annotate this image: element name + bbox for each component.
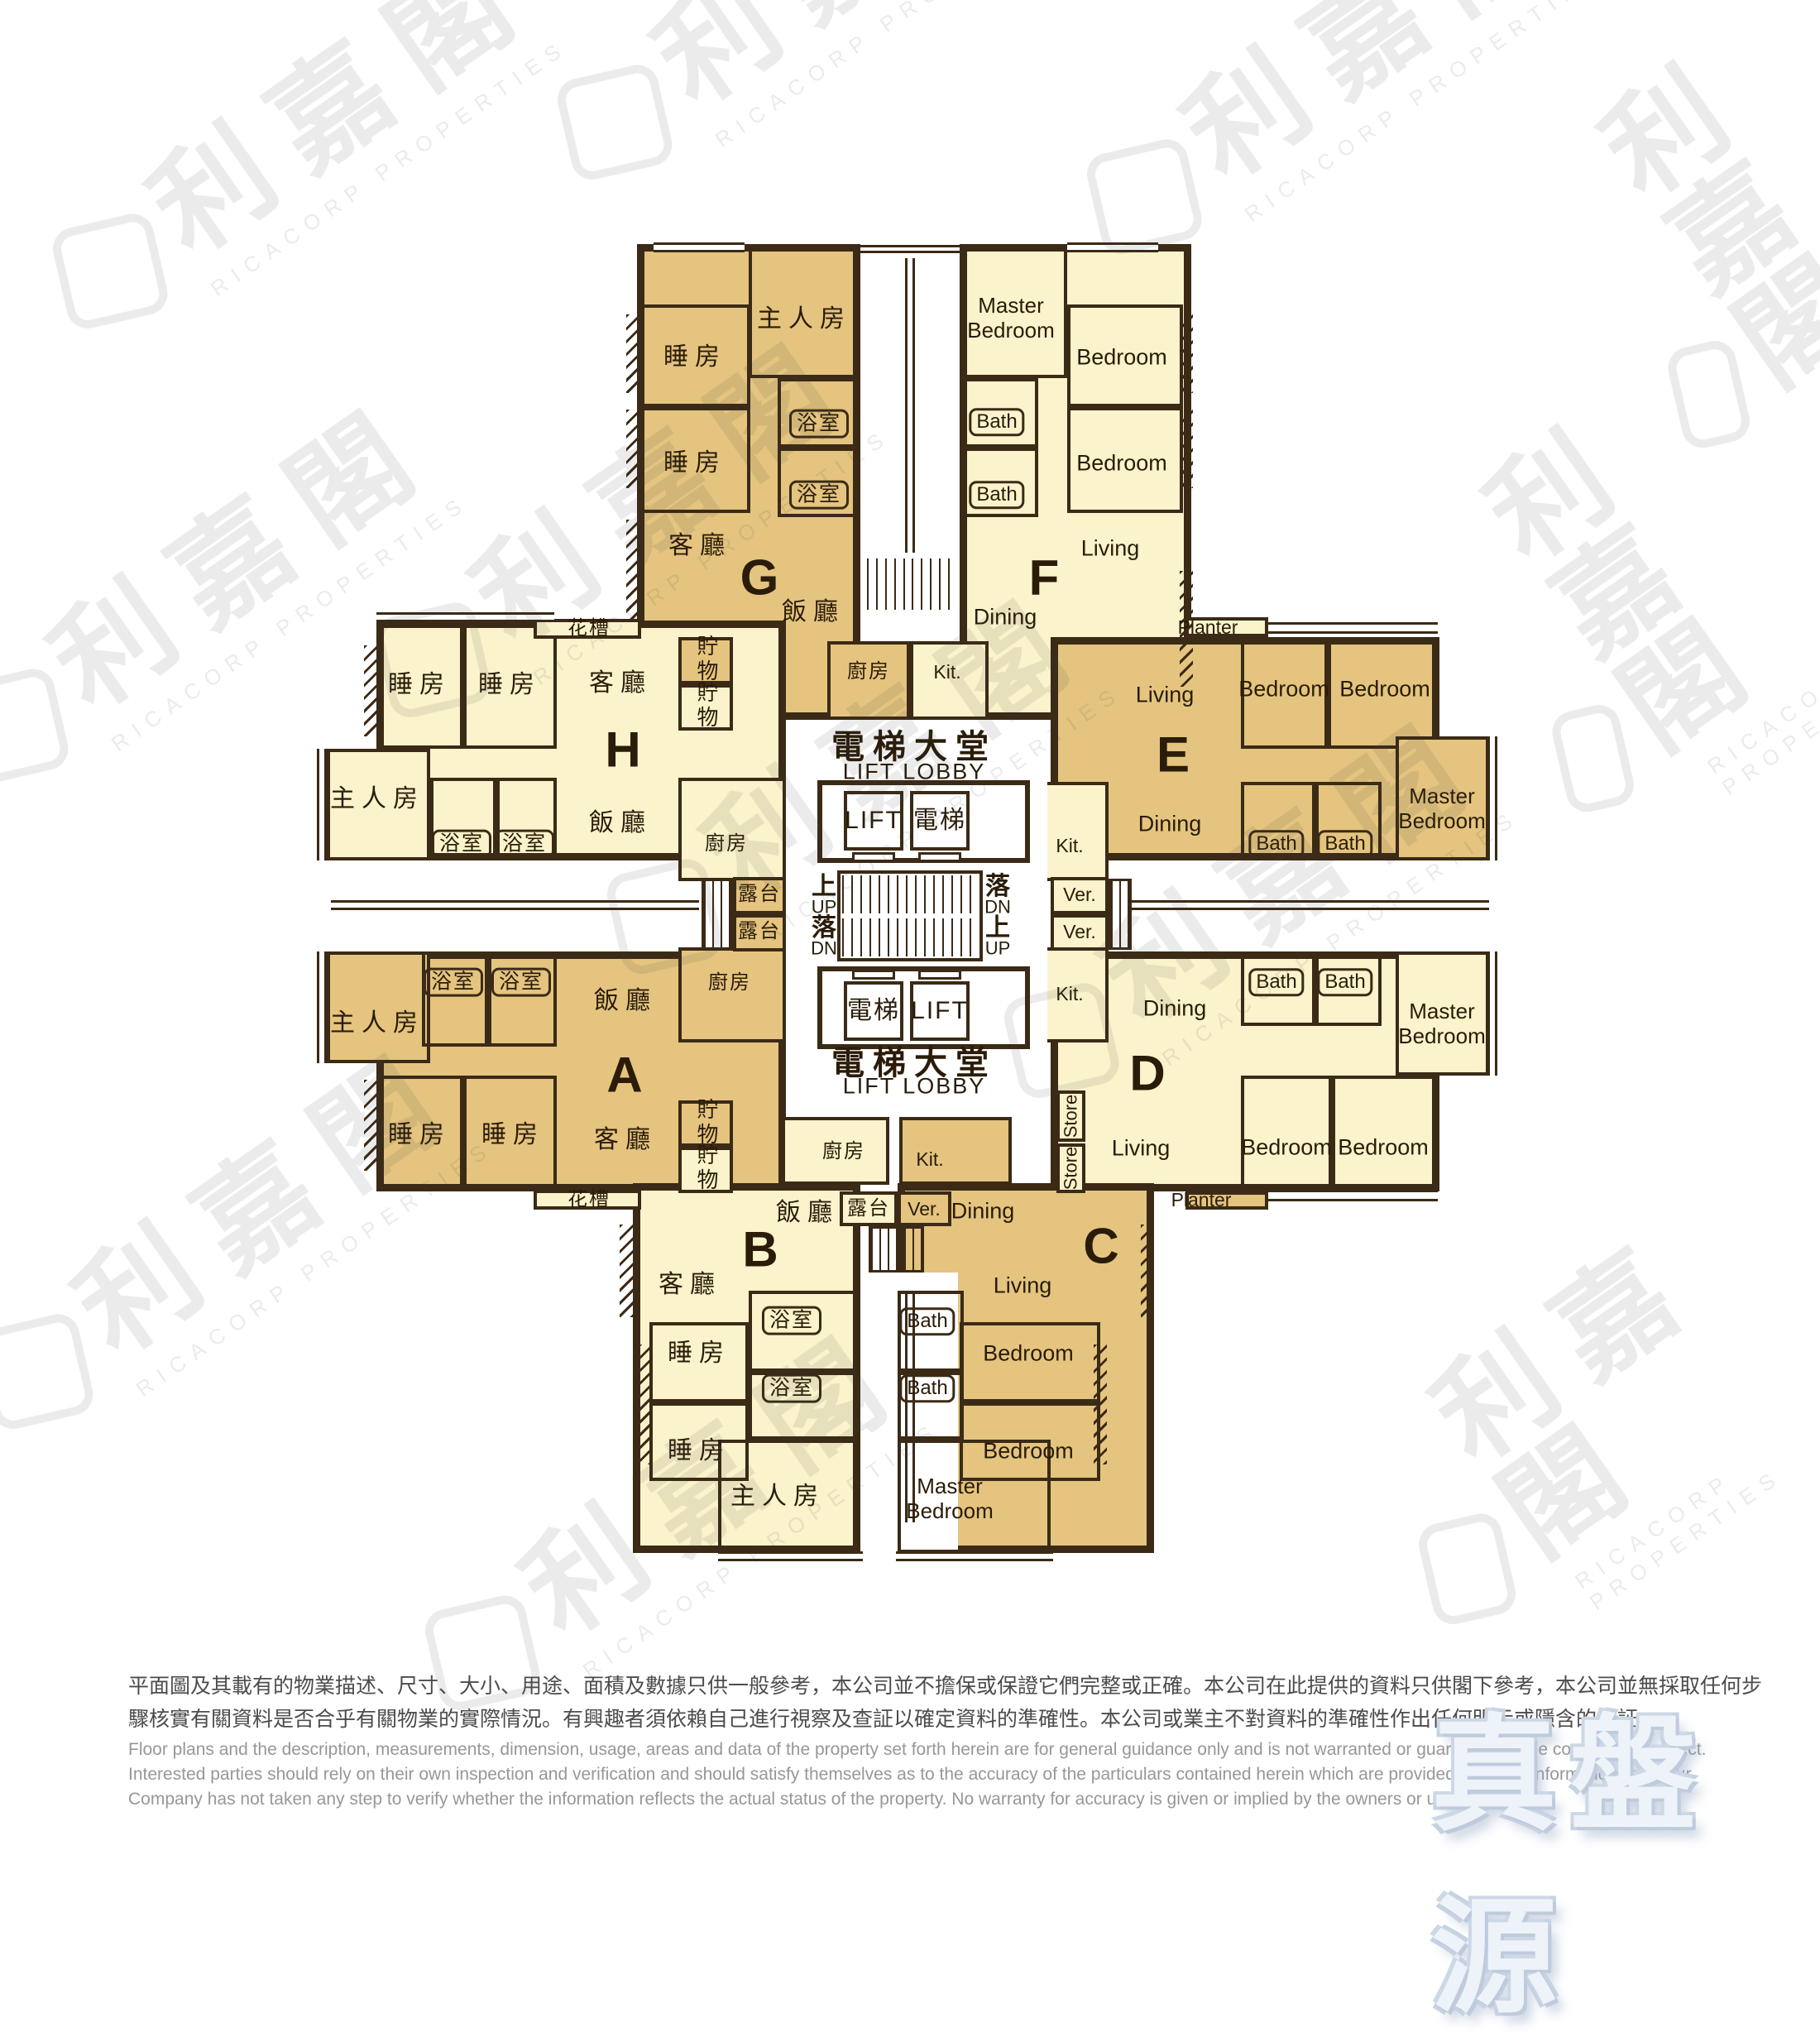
ricacorp-logo-icon [1083, 135, 1206, 258]
unit-e-letter: E [1157, 726, 1190, 784]
unit-f-living-label: Living [1081, 535, 1140, 561]
unit-a-dining-label: 飯廳 [594, 987, 657, 1016]
unit-d-dining-label: Dining [1143, 995, 1207, 1021]
unit-g-bedroom-2-label: 睡房 [663, 449, 726, 478]
unit-b-living-label: 客廳 [659, 1271, 721, 1300]
lift-door-3 [852, 970, 895, 980]
unit-g-dining-label: 飯廳 [782, 598, 845, 627]
unit-a-kitchen [678, 947, 786, 1042]
unit-d-kitchen-label: Kit. [1056, 983, 1083, 1004]
lightwell-top-rail [860, 245, 960, 253]
ricacorp-logo-icon [49, 209, 172, 333]
ricacorp-logo-icon [1664, 337, 1754, 453]
unit-c-dining-label: Dining [951, 1198, 1015, 1224]
bay-window-e-bedrooms [1268, 622, 1438, 634]
unit-b-kitchen-label: 廚房 [822, 1140, 865, 1163]
unit-d-living-label: Living [1112, 1135, 1171, 1161]
unit-g-store-label: 貯物 [693, 635, 718, 684]
unit-e-bedroom-1-label: Bedroom [1238, 676, 1329, 702]
balcony-rail-top-1 [867, 558, 908, 610]
unit-a-bedroom-2-label: 睡房 [481, 1121, 544, 1150]
zigzag-window-b-bedrooms [639, 1344, 652, 1464]
lift-top-left-label: LIFT [845, 807, 903, 836]
unit-f-letter: F [1029, 549, 1060, 606]
unit-h-kitchen-label: 廚房 [705, 832, 748, 856]
unit-c-bedroom-1-label: Bedroom [983, 1340, 1074, 1366]
ricacorp-logo-icon [0, 1310, 98, 1433]
unit-e-kitchen-label: Kit. [1056, 835, 1083, 856]
unit-a-store-label: 貯物 [693, 1098, 718, 1148]
unit-h-dining-label: 飯廳 [589, 809, 652, 838]
unit-a-planter-label: 花槽 [568, 1188, 611, 1211]
unit-d-planter-label: Planter [1171, 1189, 1232, 1210]
bay-window-c-master [896, 1551, 1053, 1561]
unit-e-bath-2-label: Bath [1317, 830, 1372, 858]
stair-up-right-en: UP [985, 937, 1011, 958]
unit-g-living-label: 客廳 [668, 532, 731, 561]
unit-f-bath-2-label: Bath [969, 481, 1024, 509]
unit-g-planter-label: 花槽 [568, 617, 611, 640]
unit-c-master-label: Master Bedroom [884, 1474, 1016, 1524]
zigzag-window-a [364, 1080, 377, 1171]
unit-c-letter: C [1083, 1218, 1118, 1275]
floor-plan: 電梯大堂 LIFT LOBBY LIFT 電梯 上 UP 落 DN 落 DN 上… [0, 0, 1820, 1820]
unit-d-bath-1-label: Bath [1248, 968, 1304, 996]
unit-a-balcony-2-label: 露台 [738, 920, 781, 943]
unit-f-bath-1-label: Bath [969, 408, 1024, 436]
unit-a-bath-1 [422, 951, 488, 1047]
unit-b-bedroom-1-label: 睡房 [668, 1340, 730, 1368]
disclaimer-zh-line-2: 驟核實有關資料是否合乎有關物業的實際情況。有興趣者須依賴自己進行視察及查証以確定… [128, 1703, 1659, 1733]
unit-h-bedroom-1-label: 睡房 [388, 671, 451, 700]
unit-c-kitchen-label: Kit. [916, 1148, 943, 1170]
ricacorp-watermark: 利嘉閣 RICACORP PROPERTIES [536, 0, 1080, 224]
unit-d-bedroom-2 [1332, 1076, 1439, 1191]
unit-f-dining-label: Dining [974, 604, 1037, 630]
lift-bottom-left-label: 電梯 [847, 997, 900, 1026]
unit-b-store-label: 貯物 [693, 1143, 718, 1193]
unit-d-bedroom-2-label: Bedroom [1338, 1134, 1429, 1160]
unit-c-bath-1-label: Bath [899, 1307, 955, 1335]
unit-a-bedroom-1-label: 睡房 [388, 1121, 451, 1150]
unit-b-letter: B [742, 1221, 778, 1278]
unit-h-master-label: 主人房 [330, 785, 424, 814]
unit-f-master-label: Master Bedroom [945, 294, 1077, 343]
lightwell-top-bridge [905, 258, 915, 553]
zigzag-window-c-living [1141, 1225, 1154, 1317]
unit-f-kitchen-label: Kit. [933, 661, 960, 683]
zigzag-window-g-1 [626, 314, 639, 393]
unit-a-kitchen-label: 廚房 [708, 971, 751, 995]
unit-a-balcony-1-label: 露台 [738, 883, 781, 906]
unit-g-bath-2-label: 浴室 [789, 481, 849, 510]
stair-flight-lower [842, 918, 978, 956]
zigzag-window-b-living [620, 1225, 633, 1317]
zigzag-window-f-2 [1180, 410, 1193, 488]
unit-h-letter: H [605, 721, 640, 779]
unit-d-bath-2-label: Bath [1317, 968, 1372, 996]
bay-window-d-bedrooms [1268, 1190, 1438, 1201]
balcony-rail-top-2 [912, 558, 953, 610]
zigzag-window-f-1 [1180, 314, 1193, 393]
unit-a-master-bedroom [327, 951, 430, 1063]
unit-e-planter-label: Planter [1178, 616, 1238, 638]
unit-a-bath-2-label: 浴室 [491, 968, 551, 997]
unit-e-veranda-label: Ver. [1063, 884, 1096, 905]
unit-b-bedroom-2-label: 睡房 [668, 1437, 730, 1466]
unit-a-master-label: 主人房 [330, 1009, 424, 1038]
lift-lobby-bottom-label-en: LIFT LOBBY [843, 1073, 986, 1099]
unit-g-kitchen-label: 廚房 [847, 660, 890, 683]
unit-h-living-label: 客廳 [589, 669, 652, 698]
stair-down-left-en: DN [811, 937, 837, 958]
unit-g-master-label: 主人房 [757, 305, 851, 334]
unit-g-bath-1-label: 浴室 [789, 410, 849, 439]
unit-d-veranda-label: Ver. [1063, 921, 1096, 942]
unit-e-dining-label: Dining [1138, 811, 1202, 836]
unit-a-bath-1-label: 浴室 [424, 968, 483, 997]
unit-a-living-label: 客廳 [594, 1126, 657, 1155]
ricacorp-watermark: 利嘉閣 RICACORP PROPERTIES [1511, 0, 1820, 508]
zigzag-window-h [364, 645, 377, 736]
unit-d-bedroom-1-label: Bedroom [1241, 1134, 1332, 1160]
unit-b-bath-1-label: 浴室 [762, 1306, 821, 1335]
ricacorp-logo-icon [1548, 701, 1638, 817]
unit-e-bath-1-label: Bath [1248, 830, 1304, 858]
bay-window-a-master [317, 951, 327, 1063]
unit-d-letter: D [1129, 1045, 1165, 1102]
balcony-rail-left [702, 879, 733, 950]
unit-h-store-label: 貯物 [693, 681, 718, 731]
unit-h-bedroom-2-label: 睡房 [478, 671, 541, 700]
unit-d-master-label: Master Bedroom [1376, 999, 1508, 1049]
bay-window-h-top [376, 612, 554, 622]
lift-door-1 [852, 852, 895, 862]
unit-h-bath-2-label: 浴室 [495, 830, 554, 859]
unit-e-living-label: Living [1136, 682, 1195, 707]
bay-window-g-top [654, 242, 745, 252]
unit-b-balcony-label: 露台 [847, 1197, 890, 1220]
balcony-rail-bottom [869, 1226, 924, 1273]
unit-d-store-2-label: Store [1060, 1147, 1080, 1191]
unit-b-master-label: 主人房 [730, 1483, 825, 1512]
ricacorp-logo-icon [553, 60, 677, 184]
lightwell-left-bridge [331, 900, 699, 910]
unit-f-bedroom-1-label: Bedroom [1076, 344, 1167, 370]
true-listing-logo: 真盤源 [1431, 1673, 1820, 2037]
unit-c-living-label: Living [994, 1273, 1052, 1298]
unit-e-master-label: Master Bedroom [1376, 784, 1508, 834]
unit-g-bedroom-1-label: 睡房 [663, 343, 726, 372]
zigzag-window-g-2 [626, 410, 639, 488]
unit-c-bath-2-label: Bath [899, 1374, 955, 1402]
unit-f-bedroom-2-label: Bedroom [1076, 450, 1167, 476]
lift-top-right-label: 電梯 [913, 807, 966, 836]
unit-b-dining-label: 飯廳 [776, 1199, 839, 1228]
lift-bottom-right-label: LIFT [911, 997, 969, 1026]
unit-a-bath-2 [488, 951, 557, 1047]
unit-d-store-1-label: Store [1060, 1095, 1080, 1138]
unit-d-bedroom-1 [1241, 1076, 1332, 1191]
unit-h-bath-1-label: 浴室 [432, 830, 491, 859]
unit-c-bedroom-2-label: Bedroom [983, 1438, 1074, 1464]
unit-g-letter: G [740, 549, 779, 606]
lightwell-right-bridge [1132, 900, 1489, 910]
unit-b-bath-2-label: 浴室 [762, 1374, 821, 1403]
ricacorp-watermark: 利嘉閣 RICACORP PROPERTIES [1329, 1189, 1820, 1686]
ricacorp-logo-icon [0, 664, 73, 788]
bay-window-f-top [1067, 242, 1158, 252]
zigzag-window-g-living [626, 520, 639, 619]
balcony-rail-right [1109, 879, 1132, 950]
unit-c-veranda-label: Ver. [908, 1198, 941, 1220]
ricacorp-watermark: 利嘉閣 RICACORP PROPERTIES [31, 0, 575, 373]
bay-window-h-master [317, 749, 327, 860]
ricacorp-logo-icon [1415, 1509, 1520, 1628]
zigzag-window-c-bedrooms [1094, 1344, 1107, 1464]
unit-a-letter: A [606, 1047, 642, 1104]
lift-lobby-top-label-en: LIFT LOBBY [843, 759, 986, 784]
lift-door-2 [918, 852, 961, 862]
unit-h-kitchen [678, 778, 786, 881]
bay-window-b-master [718, 1551, 863, 1561]
disclaimer-en-line-3: Company has not taken any step to verify… [128, 1790, 1450, 1809]
stair-flight-upper [842, 875, 978, 913]
unit-e-bedroom-2-label: Bedroom [1339, 676, 1430, 702]
lift-door-4 [918, 970, 961, 980]
